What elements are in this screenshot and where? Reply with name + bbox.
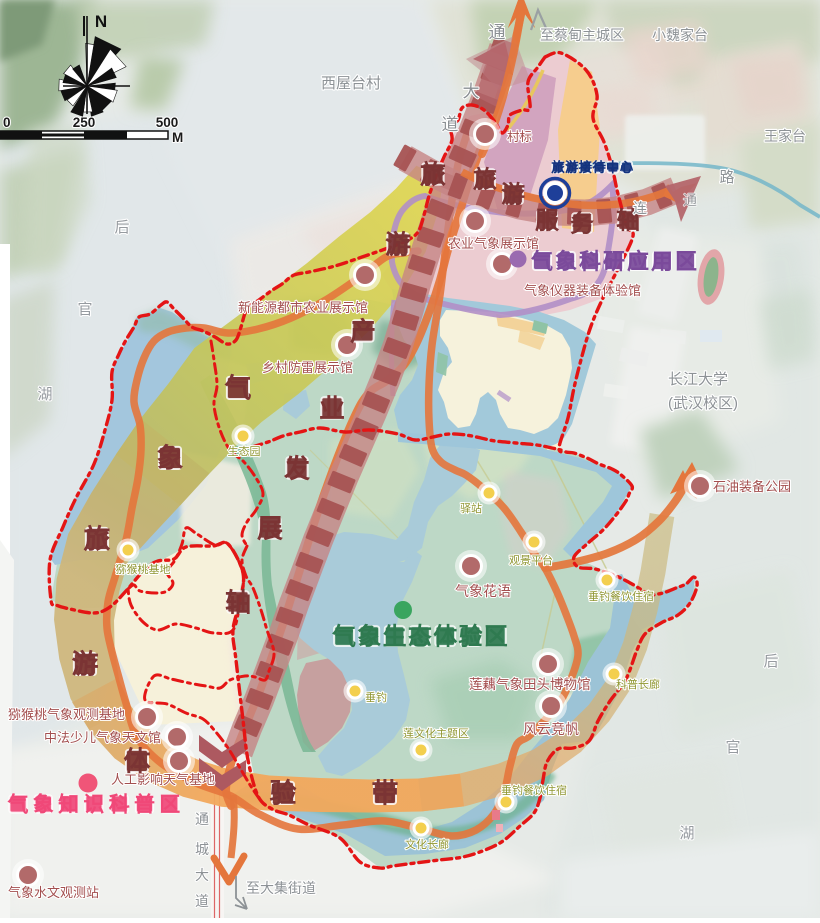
svg-text:风云竞帆: 风云竞帆 bbox=[523, 721, 579, 737]
svg-text:后: 后 bbox=[114, 219, 129, 236]
svg-text:乡村防雷展示馆: 乡村防雷展示馆 bbox=[262, 360, 353, 375]
svg-text:大: 大 bbox=[195, 867, 209, 883]
svg-text:气: 气 bbox=[7, 793, 29, 817]
svg-text:产: 产 bbox=[350, 316, 376, 346]
svg-text:通: 通 bbox=[683, 192, 697, 208]
svg-text:气象仪器装备体验馆: 气象仪器装备体验馆 bbox=[524, 283, 641, 298]
svg-text:研: 研 bbox=[603, 249, 625, 274]
svg-text:验: 验 bbox=[270, 778, 297, 809]
svg-text:中法少儿气象天文馆: 中法少儿气象天文馆 bbox=[44, 730, 161, 745]
svg-text:接: 接 bbox=[579, 159, 593, 175]
svg-text:小魏家台: 小魏家台 bbox=[652, 27, 708, 43]
svg-text:生: 生 bbox=[383, 624, 407, 651]
svg-text:态: 态 bbox=[408, 623, 432, 651]
svg-text:体: 体 bbox=[124, 747, 152, 777]
svg-text:湖: 湖 bbox=[37, 386, 52, 403]
svg-text:后: 后 bbox=[763, 653, 778, 670]
svg-text:(武汉校区): (武汉校区) bbox=[668, 395, 738, 412]
svg-text:长江大学: 长江大学 bbox=[668, 371, 728, 388]
svg-text:中: 中 bbox=[606, 159, 620, 175]
svg-text:体: 体 bbox=[433, 624, 458, 651]
svg-text:应: 应 bbox=[627, 249, 649, 274]
svg-text:用: 用 bbox=[651, 249, 673, 274]
svg-text:驿站: 驿站 bbox=[460, 501, 482, 515]
svg-text:观景平台: 观景平台 bbox=[509, 553, 553, 567]
svg-text:通: 通 bbox=[195, 811, 209, 827]
svg-text:垂钓餐饮住宿: 垂钓餐饮住宿 bbox=[588, 589, 654, 603]
svg-text:气: 气 bbox=[530, 249, 553, 274]
svg-text:待: 待 bbox=[592, 159, 606, 175]
svg-text:至大集街道: 至大集街道 bbox=[246, 880, 316, 896]
svg-text:象: 象 bbox=[33, 793, 54, 817]
svg-text:轴: 轴 bbox=[225, 587, 251, 617]
svg-text:象: 象 bbox=[357, 623, 381, 651]
svg-text:通: 通 bbox=[489, 23, 506, 42]
svg-text:石油装备公园: 石油装备公园 bbox=[713, 479, 791, 494]
svg-text:250: 250 bbox=[73, 115, 96, 130]
svg-text:旅: 旅 bbox=[420, 159, 446, 189]
svg-text:科: 科 bbox=[579, 249, 601, 274]
svg-text:游: 游 bbox=[385, 229, 411, 259]
svg-text:知: 知 bbox=[58, 793, 79, 817]
svg-text:生态园: 生态园 bbox=[228, 444, 261, 458]
svg-text:路: 路 bbox=[719, 169, 734, 186]
svg-text:服: 服 bbox=[535, 208, 560, 235]
svg-text:N: N bbox=[95, 12, 107, 31]
svg-text:道: 道 bbox=[195, 893, 209, 909]
svg-text:旅: 旅 bbox=[551, 159, 565, 175]
svg-text:0: 0 bbox=[3, 115, 11, 130]
svg-text:官: 官 bbox=[725, 739, 740, 756]
svg-text:垂钓餐饮住宿: 垂钓餐饮住宿 bbox=[501, 783, 567, 797]
svg-text:西屋台村: 西屋台村 bbox=[321, 75, 381, 92]
svg-text:王家台: 王家台 bbox=[764, 128, 806, 144]
svg-text:垂钓: 垂钓 bbox=[365, 690, 387, 704]
svg-text:旅: 旅 bbox=[473, 167, 497, 194]
svg-text:村标: 村标 bbox=[507, 130, 532, 144]
svg-text:气象花语: 气象花语 bbox=[455, 583, 511, 599]
svg-text:大: 大 bbox=[463, 82, 480, 101]
svg-text:湖: 湖 bbox=[679, 825, 694, 842]
svg-text:普: 普 bbox=[134, 793, 155, 817]
svg-text:发: 发 bbox=[283, 453, 310, 483]
svg-text:猕猴桃气象观测基地: 猕猴桃气象观测基地 bbox=[8, 707, 125, 722]
svg-text:文化长廊: 文化长廊 bbox=[405, 837, 449, 851]
svg-text:心: 心 bbox=[620, 160, 634, 175]
svg-text:游: 游 bbox=[565, 159, 579, 175]
svg-text:官: 官 bbox=[77, 301, 92, 318]
svg-text:M: M bbox=[172, 130, 183, 145]
svg-text:验: 验 bbox=[459, 623, 483, 651]
svg-text:科普长廊: 科普长廊 bbox=[616, 677, 660, 691]
svg-text:区: 区 bbox=[675, 249, 697, 274]
svg-text:务: 务 bbox=[570, 210, 595, 238]
svg-text:猕猴桃基地: 猕猴桃基地 bbox=[116, 562, 171, 576]
svg-text:莲文化主题区: 莲文化主题区 bbox=[403, 726, 469, 740]
svg-text:识: 识 bbox=[83, 794, 104, 817]
svg-text:区: 区 bbox=[159, 794, 180, 817]
svg-text:展: 展 bbox=[257, 513, 283, 543]
svg-text:带: 带 bbox=[372, 779, 399, 809]
svg-text:新能源都市农业展示馆: 新能源都市农业展示馆 bbox=[238, 300, 368, 315]
svg-text:连: 连 bbox=[633, 200, 647, 216]
svg-text:气: 气 bbox=[224, 374, 252, 404]
svg-text:莲藕气象田头博物馆: 莲藕气象田头博物馆 bbox=[469, 676, 591, 692]
svg-text:500: 500 bbox=[156, 115, 179, 130]
svg-text:城: 城 bbox=[195, 841, 209, 857]
svg-text:象: 象 bbox=[555, 249, 577, 274]
svg-text:气: 气 bbox=[331, 623, 356, 651]
svg-text:旅: 旅 bbox=[84, 524, 111, 555]
svg-text:游: 游 bbox=[501, 181, 525, 209]
svg-text:区: 区 bbox=[484, 624, 508, 651]
svg-text:道: 道 bbox=[442, 115, 459, 134]
svg-text:象: 象 bbox=[157, 443, 184, 474]
svg-text:气象水文观测站: 气象水文观测站 bbox=[8, 885, 99, 900]
svg-text:科: 科 bbox=[109, 793, 130, 817]
svg-text:游: 游 bbox=[72, 650, 99, 680]
svg-text:业: 业 bbox=[319, 393, 345, 423]
svg-text:农业气象展示馆: 农业气象展示馆 bbox=[448, 236, 539, 251]
svg-text:至蔡甸主城区: 至蔡甸主城区 bbox=[540, 27, 624, 43]
